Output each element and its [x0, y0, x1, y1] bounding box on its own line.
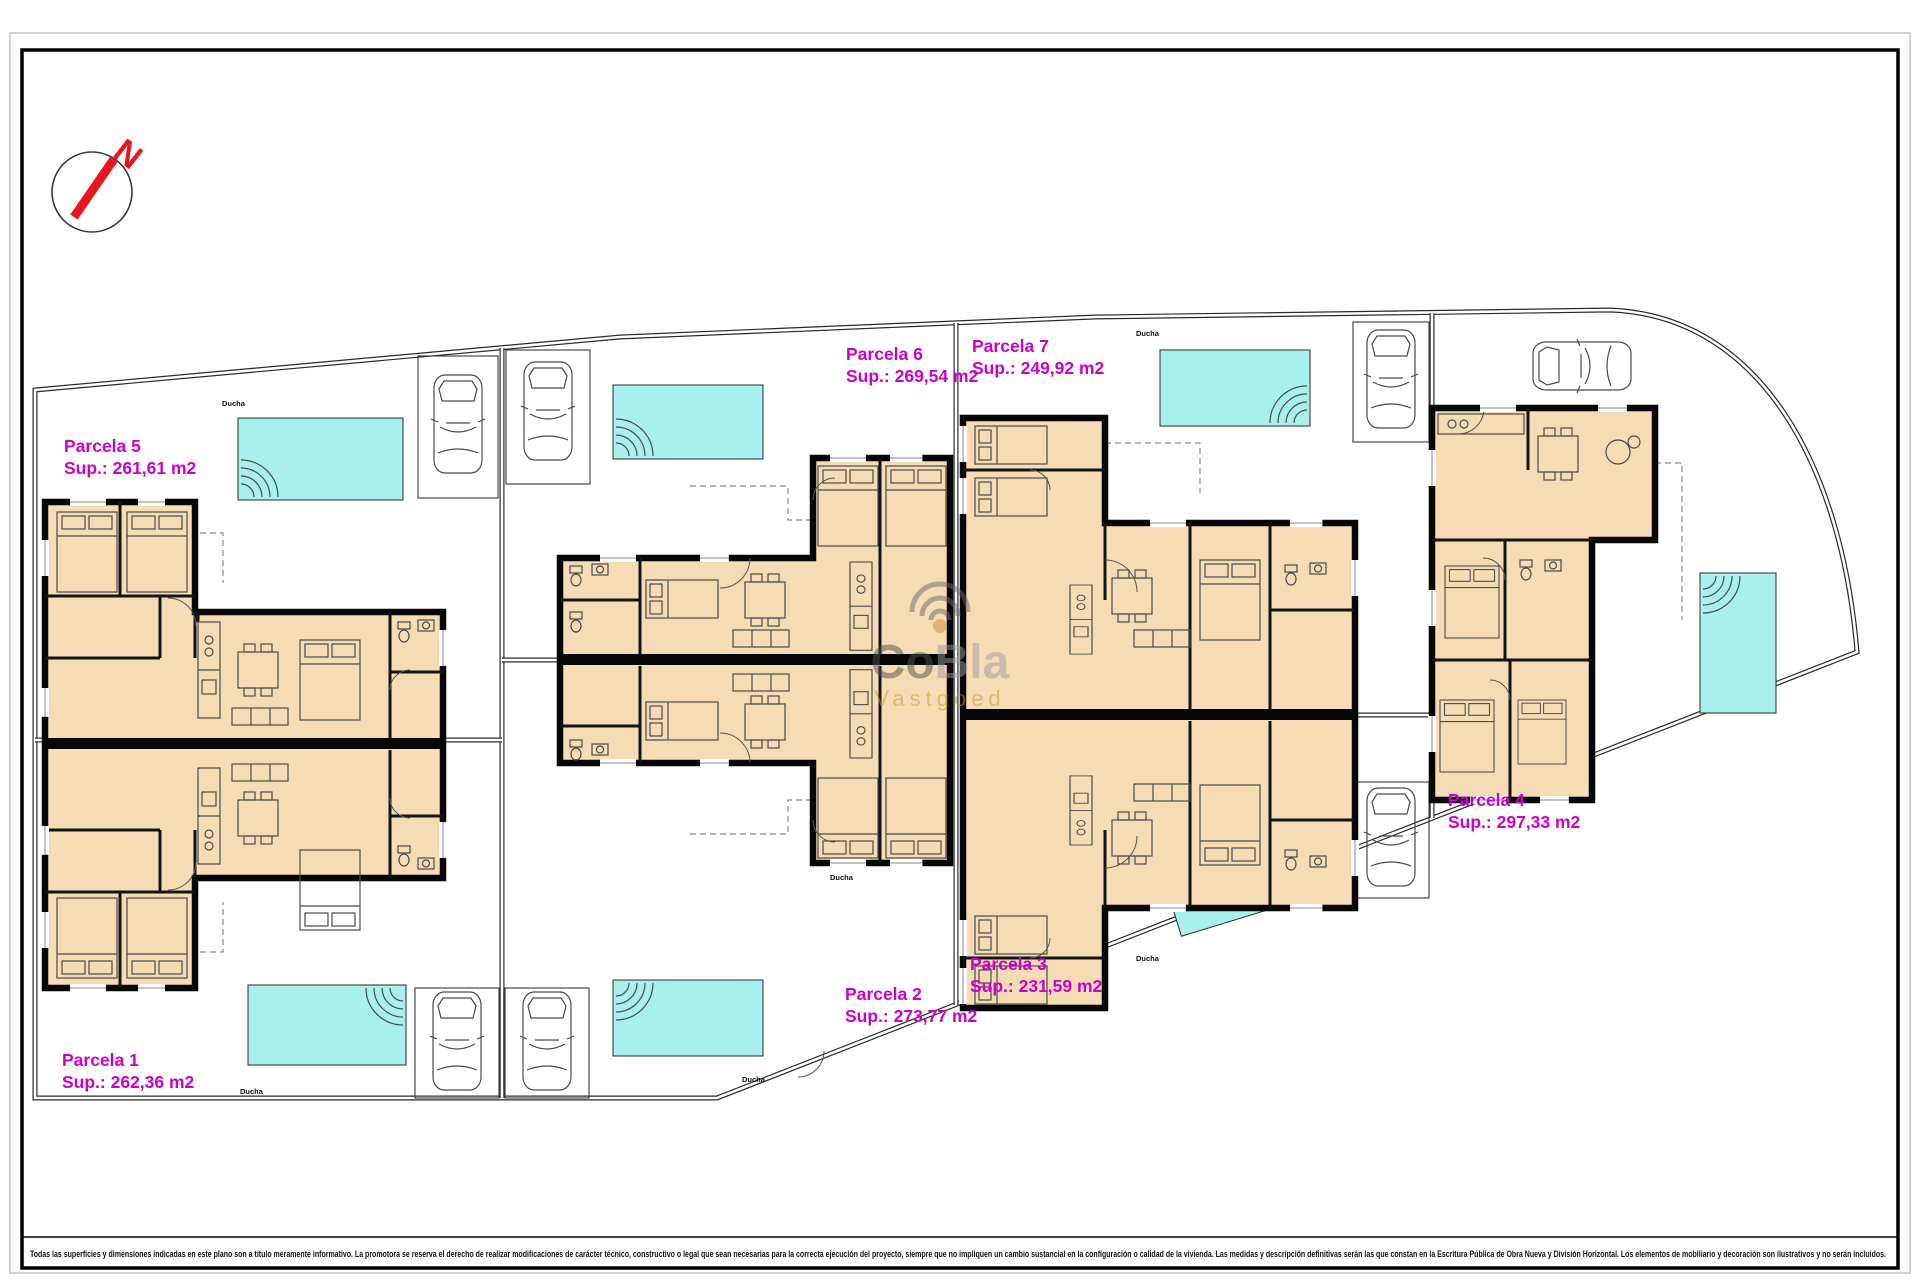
- car-icon: [430, 992, 484, 1090]
- parcel-6-area: Sup.: 269,54 m2: [846, 366, 979, 386]
- car-icon: [520, 992, 574, 1090]
- shower-label: Ducha: [742, 1075, 766, 1084]
- parcel-3-label: Parcela 3: [970, 954, 1047, 974]
- pool-parcela-5: [238, 418, 403, 500]
- parcel-5-area: Sup.: 261,61 m2: [64, 458, 197, 478]
- parcel-3-area: Sup.: 231,59 m2: [970, 976, 1103, 996]
- car-icon: [521, 362, 575, 460]
- car-icon: [1364, 788, 1418, 886]
- parking-box: [1353, 322, 1429, 442]
- site-plan-drawing: N: [0, 0, 1920, 1280]
- pool-parcela-2: [613, 980, 763, 1056]
- parcel-4-area: Sup.: 297,33 m2: [1448, 812, 1581, 832]
- building-parcelas-7-3: [959, 418, 1359, 1008]
- parking-box: [506, 350, 590, 484]
- pool-parcela-1: [248, 985, 406, 1065]
- parcel-1-label: Parcela 1: [62, 1050, 139, 1070]
- parcel-7-label: Parcela 7: [972, 336, 1049, 356]
- pool-parcela-4: [1700, 573, 1776, 713]
- shower-label: Ducha: [222, 399, 246, 408]
- shower-label: Ducha: [830, 873, 854, 882]
- parcel-1-area: Sup.: 262,36 m2: [62, 1072, 195, 1092]
- parking-box: [505, 988, 589, 1098]
- pool-parcela-7: [1160, 350, 1310, 426]
- parking-box: [1353, 782, 1429, 898]
- parcel-7-area: Sup.: 249,92 m2: [972, 358, 1105, 378]
- pool-parcela-6: [613, 385, 763, 459]
- parcel-4-label: Parcela 4: [1448, 790, 1525, 810]
- party-wall: [45, 738, 443, 749]
- north-compass: N: [52, 132, 149, 232]
- shower-label: Ducha: [240, 1087, 264, 1096]
- disclaimer-text: Todas las superficies y dimensiones indi…: [30, 1249, 1886, 1259]
- shower-label: Ducha: [1136, 329, 1160, 338]
- watermark-tagline: Vastgoed: [874, 686, 1005, 711]
- parcel-2-area: Sup.: 273,77 m2: [845, 1006, 978, 1026]
- party-wall: [963, 709, 1355, 720]
- parking-box: [415, 988, 499, 1098]
- parcel-5-label: Parcela 5: [64, 436, 141, 456]
- parcel-2-label: Parcela 2: [845, 984, 922, 1004]
- parking-box: [418, 356, 498, 498]
- north-arrow-icon: [74, 159, 114, 217]
- building-parcelas-5-1: [41, 498, 447, 992]
- shower-label: Ducha: [1136, 954, 1160, 963]
- car-icon: [431, 375, 485, 473]
- watermark-brand: CoBla: [871, 636, 1010, 689]
- car-icon: [1533, 339, 1631, 393]
- site-plan-page: N: [0, 0, 1920, 1280]
- parcel-6-label: Parcela 6: [846, 344, 923, 364]
- car-icon: [1364, 330, 1418, 428]
- north-label: N: [106, 132, 149, 177]
